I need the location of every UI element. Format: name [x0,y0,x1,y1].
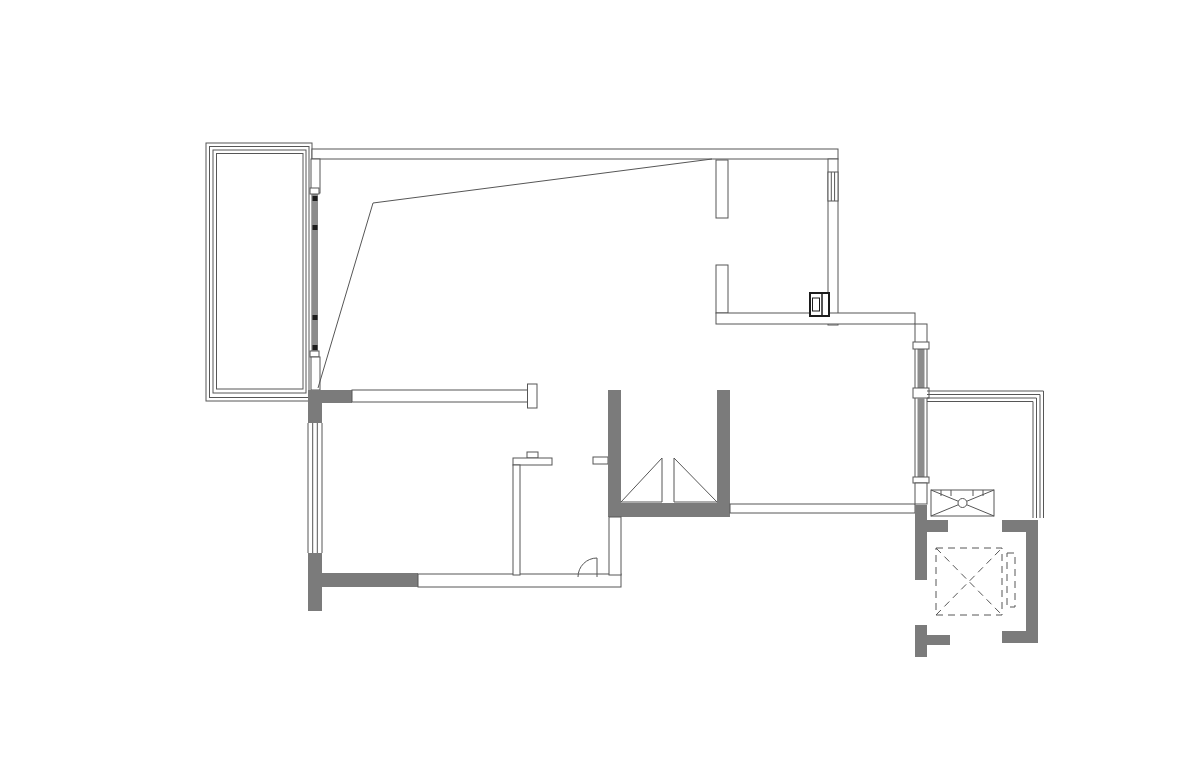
floor-plan-canvas [0,0,1200,776]
mid-partition [308,384,537,423]
exhaust-fan-box [931,490,994,516]
window-cap [913,477,929,483]
bottom-wall [418,574,621,587]
elevator-lobby-walls [915,505,1038,657]
bottom-walls [308,553,621,611]
shaft-triangle-right [674,458,717,502]
left-facade-window [308,423,322,553]
elevator-shaft [936,548,1015,615]
partition-cap [527,452,538,458]
corridor-wall [730,504,915,513]
window-junction [913,388,929,398]
window-cap [913,342,929,349]
wall-below-shaft [609,517,621,575]
right-wall-window [828,172,838,201]
exterior-walls [311,149,838,325]
wall-appliance-box [810,293,829,316]
track-marker [313,345,318,350]
fan-hub [958,499,967,508]
balcony [206,143,312,401]
top-wall [312,149,838,159]
track-marker [313,315,318,320]
partition-end-cap [528,384,538,408]
door-jamb-stub [593,457,608,464]
partition-wall [352,390,528,402]
bathroom-partition [513,452,608,575]
stair-duct-shaft [608,390,730,575]
right-facade-windows [913,324,929,504]
floor-plan-page [0,0,1200,776]
elevator-door [1007,553,1015,607]
track-marker [313,196,318,201]
sight-lines [318,159,712,388]
shaft-triangle-left [621,458,662,502]
track-marker [313,225,318,230]
